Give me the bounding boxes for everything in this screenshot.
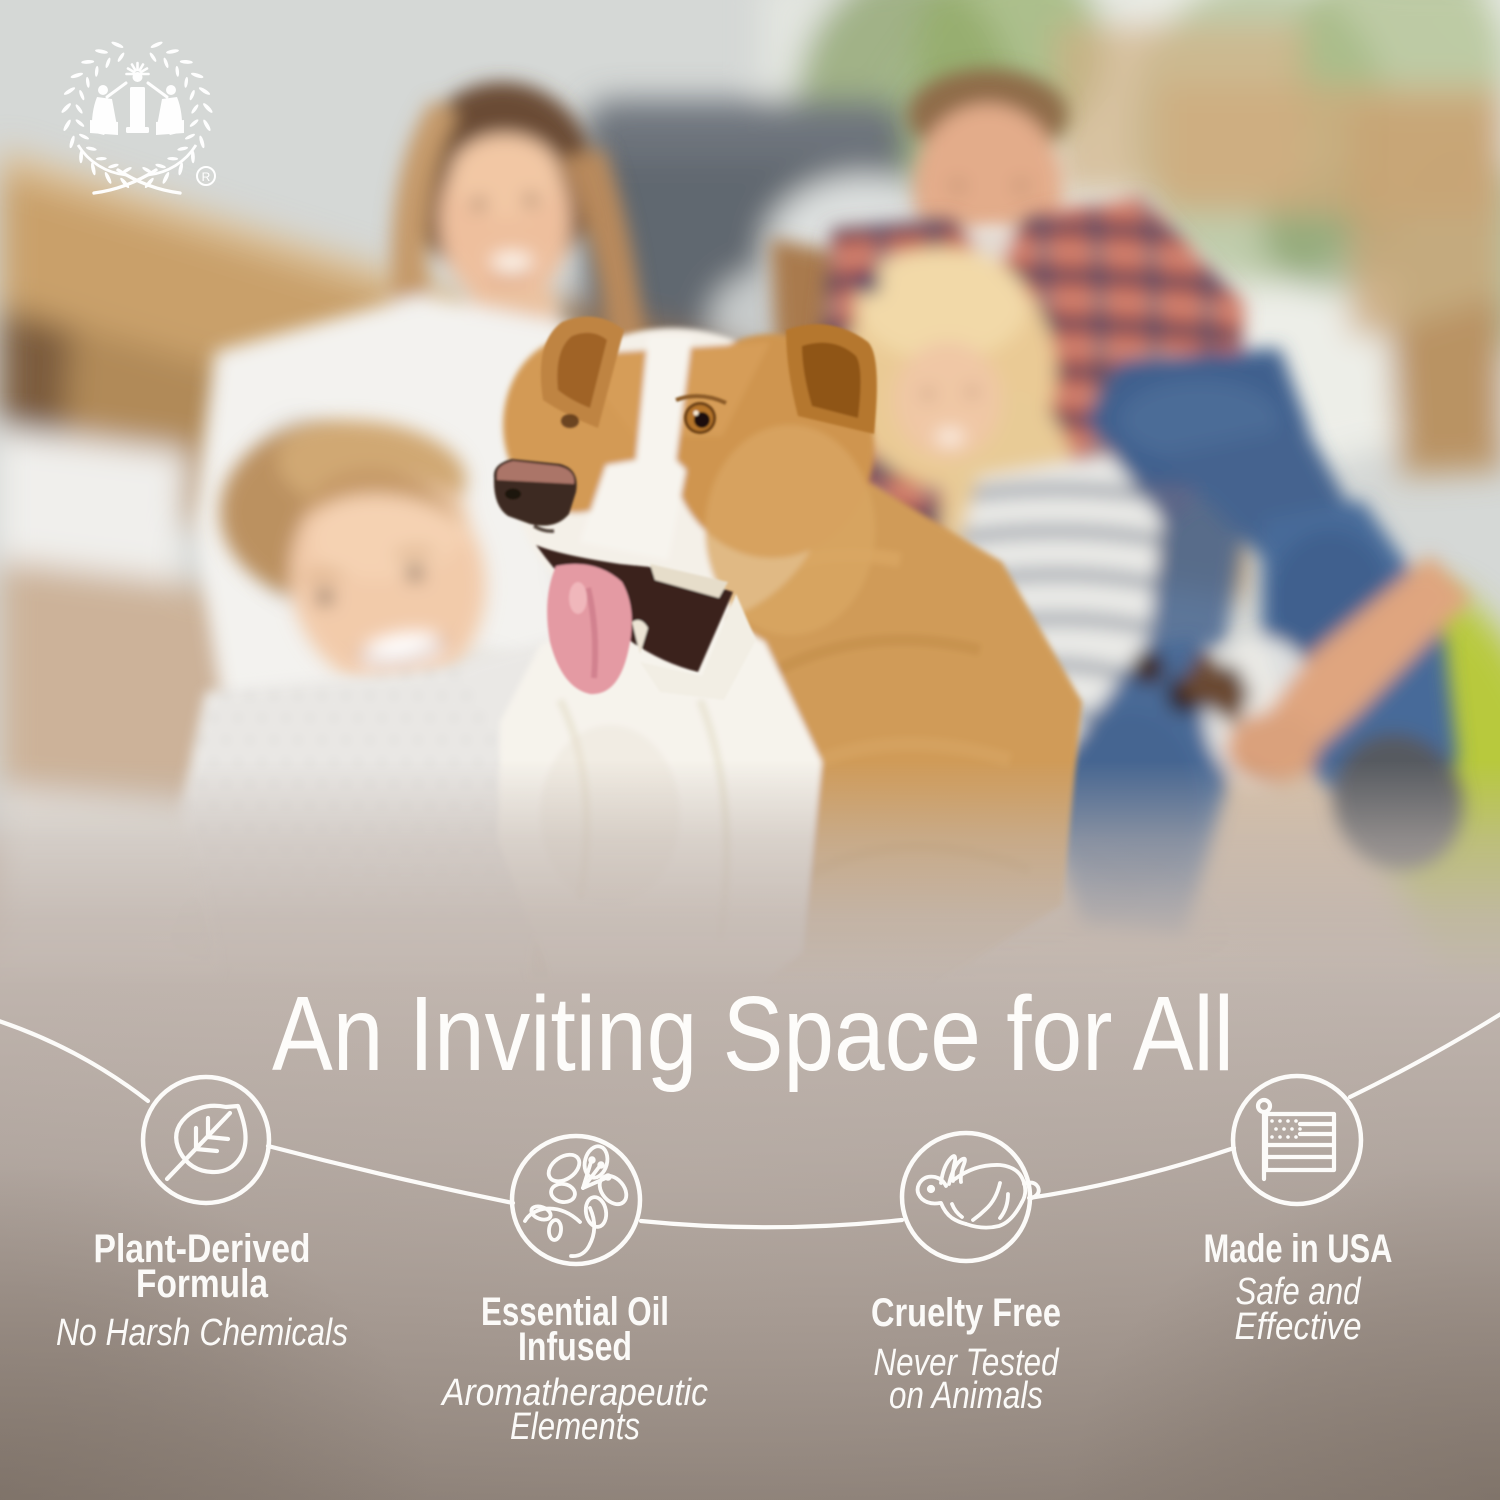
svg-text:Made in USA: Made in USA	[1204, 1227, 1393, 1271]
svg-text:Cruelty Free: Cruelty Free	[871, 1291, 1061, 1335]
svg-text:Elements: Elements	[510, 1406, 640, 1448]
svg-text:Effective: Effective	[1235, 1306, 1362, 1348]
svg-text:R: R	[202, 170, 211, 184]
svg-text:No Harsh Chemicals: No Harsh Chemicals	[56, 1312, 348, 1354]
svg-text:Infused: Infused	[518, 1325, 632, 1369]
svg-text:An Inviting Space for All: An Inviting Space for All	[272, 975, 1234, 1093]
svg-text:on Animals: on Animals	[889, 1375, 1043, 1417]
svg-text:Formula: Formula	[136, 1262, 269, 1306]
